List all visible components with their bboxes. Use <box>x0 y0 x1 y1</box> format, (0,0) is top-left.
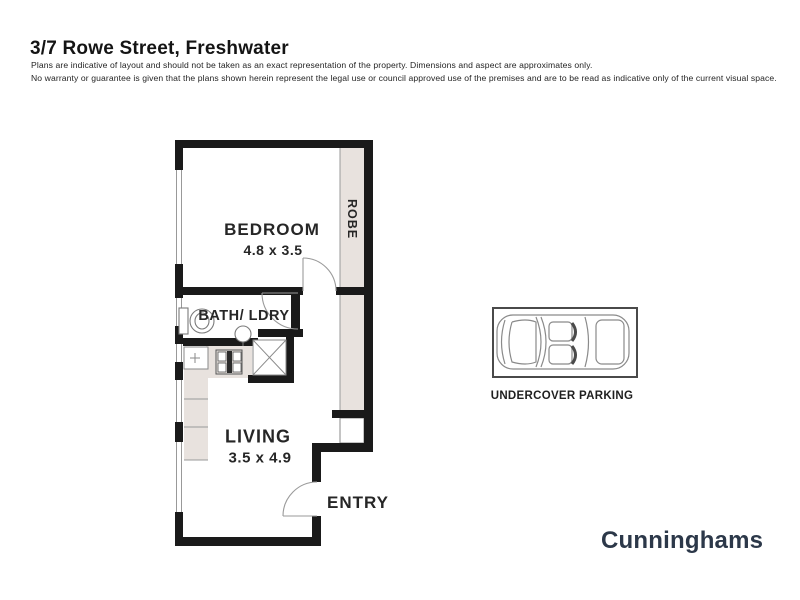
room-label-bath-laundry: BATH/ LDRY <box>198 308 289 324</box>
page-title: 3/7 Rowe Street, Freshwater <box>30 38 289 60</box>
wall-entry-upper <box>312 443 321 482</box>
disclaimer-line-1: Plans are indicative of layout and shoul… <box>31 60 592 70</box>
wall-hall-stub <box>332 410 373 418</box>
wall-top <box>175 140 373 148</box>
room-label-entry: ENTRY <box>327 493 389 513</box>
kitchen-cupboard-area <box>184 369 208 460</box>
wall-bottom <box>175 537 321 546</box>
wall-bedroom-stub <box>336 287 373 295</box>
room-label-living: LIVING <box>225 427 291 448</box>
room-dims-living: 3.5 x 4.9 <box>229 450 292 467</box>
room-dims-bedroom: 4.8 x 3.5 <box>244 242 303 258</box>
kitchen-sink-icon <box>184 347 208 369</box>
room-label-bedroom: BEDROOM <box>224 220 320 240</box>
floorplan-drawing <box>0 0 800 600</box>
hall-storage-area <box>340 295 364 410</box>
room-label-robe: ROBE <box>345 199 359 239</box>
wall-entry-step <box>312 443 373 452</box>
cooktop-icon <box>216 350 242 374</box>
wall-bath-right <box>291 295 300 329</box>
wall-linen-bottom <box>248 375 294 383</box>
parking-label: UNDERCOVER PARKING <box>491 390 634 402</box>
disclaimer-line-2: No warranty or guarantee is given that t… <box>31 73 777 83</box>
wall-left-4 <box>175 362 183 380</box>
wall-right <box>364 140 373 452</box>
wall-linen-top <box>258 329 303 337</box>
parking-bay <box>493 308 637 377</box>
wall-left-5 <box>175 422 183 442</box>
linen-cupboard-icon <box>253 340 286 375</box>
wall-left-1 <box>175 140 183 170</box>
wall-left-6 <box>175 512 183 546</box>
agency-logo: Cunninghams <box>601 527 763 555</box>
wall-bedroom <box>175 287 303 295</box>
